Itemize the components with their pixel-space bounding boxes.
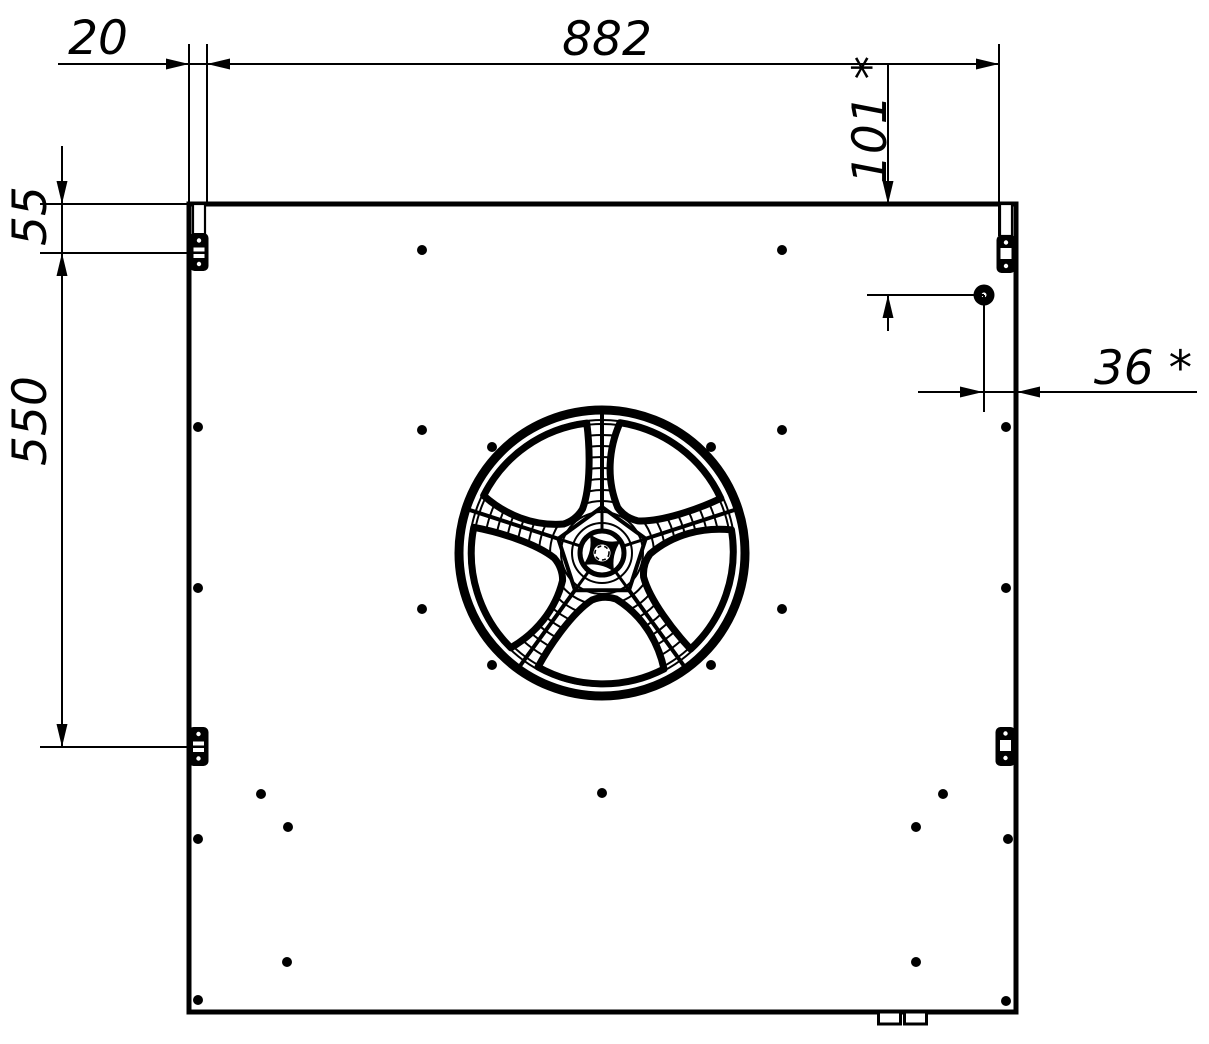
screw-hole — [706, 660, 716, 670]
screw-hole — [1001, 422, 1011, 432]
arrow — [1017, 387, 1040, 398]
screw-hole — [193, 995, 203, 1005]
screw-hole — [487, 442, 497, 452]
screw-hole — [417, 425, 427, 435]
screw-hole — [1001, 583, 1011, 593]
arrow — [883, 295, 894, 318]
screw-hole — [597, 788, 607, 798]
screw-hole — [1001, 996, 1011, 1006]
drawing-canvas: 20 882 36 * 101 * 55 550 — [0, 0, 1209, 1044]
screw-hole — [1003, 834, 1013, 844]
arrow — [960, 387, 983, 398]
hub-bore — [594, 545, 611, 562]
screw-hole — [938, 789, 948, 799]
screw-hole — [417, 604, 427, 614]
mounting-foot — [879, 1012, 901, 1024]
screw-hole — [777, 425, 787, 435]
screw-hole — [777, 604, 787, 614]
screw-hole — [911, 822, 921, 832]
mounting-foot — [905, 1012, 927, 1024]
screw-hole — [282, 957, 292, 967]
arrow — [57, 724, 68, 747]
hinge-bracket-top-left — [190, 204, 209, 271]
arrow — [976, 59, 999, 70]
screw-hole — [487, 660, 497, 670]
dim-label-20: 20 — [68, 11, 128, 66]
dim-label-36: 36 * — [1094, 341, 1192, 396]
dim-label-55: 55 — [3, 186, 58, 246]
arrow — [57, 181, 68, 204]
hinge-bracket-mid-right — [996, 727, 1016, 766]
screw-hole — [193, 834, 203, 844]
arrow — [207, 59, 230, 70]
screw-hole — [417, 245, 427, 255]
screw-hole — [193, 583, 203, 593]
drawing-sheet: 20 882 36 * 101 * 55 550 — [0, 0, 1209, 1044]
fan — [458, 409, 746, 696]
dim-label-882: 882 — [562, 12, 652, 67]
arrow — [57, 253, 68, 276]
dim-label-550: 550 — [3, 376, 58, 466]
screw-hole — [777, 245, 787, 255]
dim-label-101: 101 * — [843, 56, 898, 184]
arrow — [166, 59, 189, 70]
screw-hole — [283, 822, 293, 832]
screw-hole — [256, 789, 266, 799]
screw-hole — [193, 422, 203, 432]
screw-hole — [911, 957, 921, 967]
